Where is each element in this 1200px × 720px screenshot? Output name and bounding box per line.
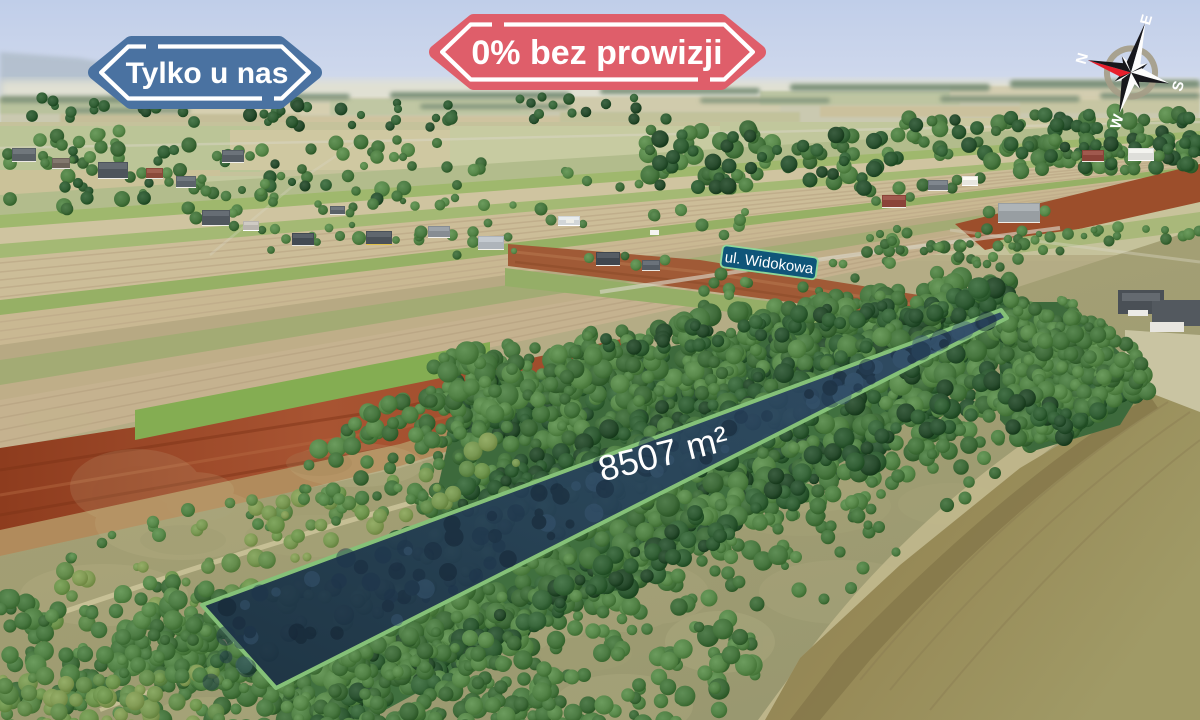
svg-text:Tylko u nas: Tylko u nas xyxy=(126,57,289,90)
svg-text:0% bez prowizji: 0% bez prowizji xyxy=(471,34,722,72)
